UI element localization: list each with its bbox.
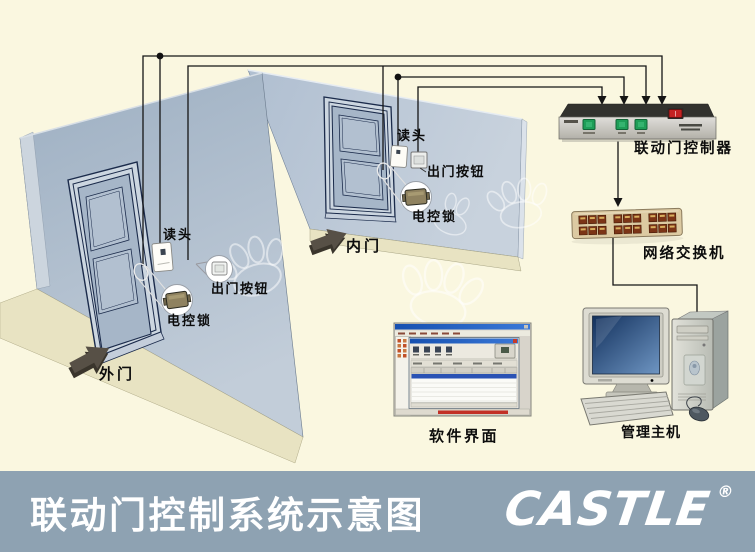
outer-lock-label: 电控锁 xyxy=(167,315,212,329)
inner-lock-label: 电控锁 xyxy=(412,211,457,225)
controller-power-switch xyxy=(668,108,684,119)
outer-card-reader xyxy=(152,242,173,272)
software-window xyxy=(394,323,531,416)
inner-door-label: 内门 xyxy=(346,238,382,255)
registered-trademark-icon: ® xyxy=(716,482,735,501)
inner-reader-label: 读头 xyxy=(397,130,427,144)
brand-logo: CASTLE® xyxy=(501,482,735,537)
pc-tower xyxy=(672,311,728,410)
title-banner: 联动门控制系统示意图 CASTLE® xyxy=(0,471,755,552)
outer-reader-label: 读头 xyxy=(163,229,193,243)
diagram-canvas: 读头 出门按钮 电控锁 外门 读头 出门按钮 电控锁 内门 联动门控制器 网络交… xyxy=(0,0,755,552)
inner-door xyxy=(324,97,396,222)
host-computer xyxy=(581,308,728,425)
outer-door-label: 外门 xyxy=(99,366,135,383)
controller-label: 联动门控制器 xyxy=(634,142,733,158)
inner-card-reader xyxy=(390,145,407,167)
host-label: 管理主机 xyxy=(621,426,681,441)
software-label: 软件界面 xyxy=(429,428,499,445)
scene-svg xyxy=(0,0,755,552)
network-switch-device xyxy=(571,208,684,246)
outer-exit-button-label: 出门按钮 xyxy=(211,283,269,297)
diagram-title: 联动门控制系统示意图 xyxy=(30,485,425,539)
brand-logo-text: CASTLE xyxy=(501,482,714,537)
controller-device xyxy=(559,104,716,142)
network-switch-label: 网络交换机 xyxy=(643,247,726,263)
inner-exit-button-label: 出门按钮 xyxy=(427,166,485,180)
